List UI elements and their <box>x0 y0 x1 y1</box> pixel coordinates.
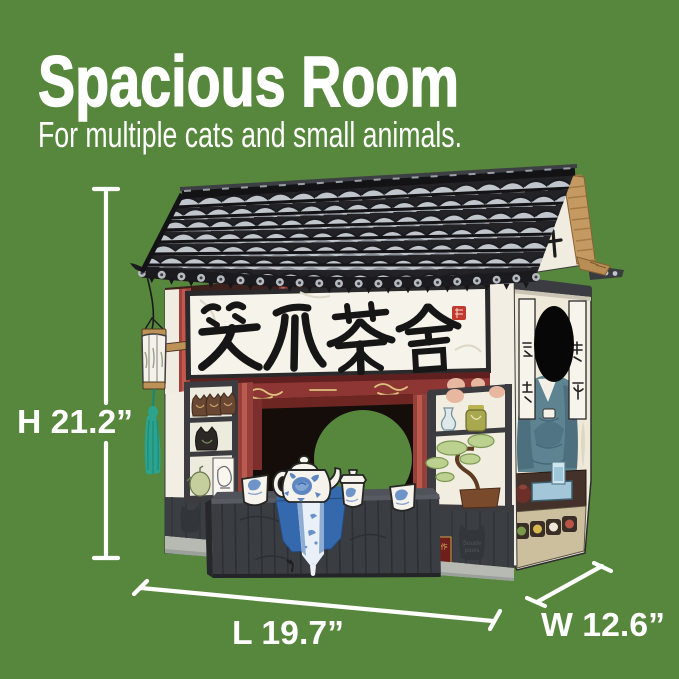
svg-text:L 19.7”: L 19.7” <box>232 614 344 651</box>
svg-text:W 12.6”: W 12.6” <box>541 606 665 643</box>
svg-text:For multiple cats and small an: For multiple cats and small animals. <box>38 114 462 155</box>
svg-text:Soude: Soude <box>463 541 482 547</box>
svg-text:Spacious Room: Spacious Room <box>38 43 459 122</box>
svg-text:H 21.2”: H 21.2” <box>17 403 133 440</box>
svg-text:作: 作 <box>441 542 448 551</box>
svg-text:paws: paws <box>464 548 480 554</box>
